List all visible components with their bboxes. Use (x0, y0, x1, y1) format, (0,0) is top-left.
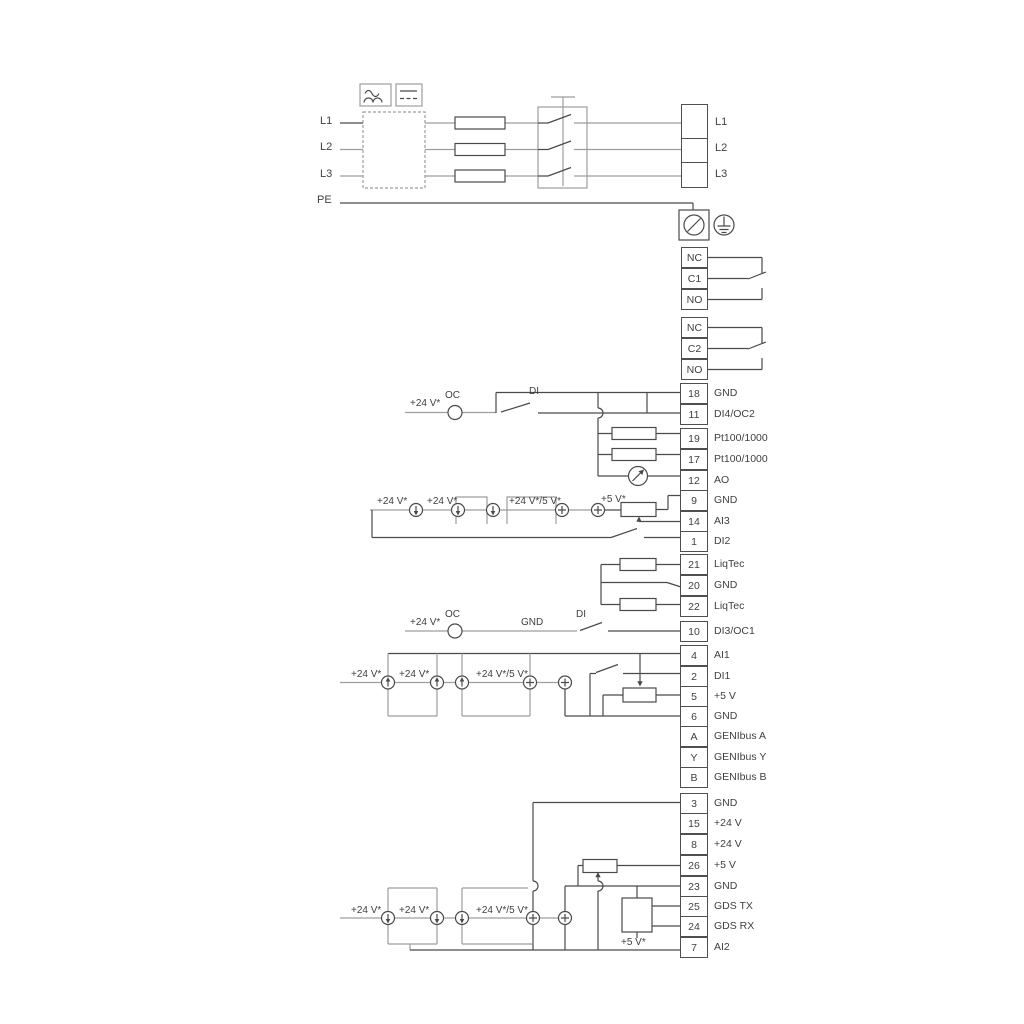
potentiometer-icon (583, 860, 617, 873)
dc-symbol-icon (396, 84, 422, 106)
power-out-label-l2: L2 (715, 142, 727, 154)
fuse-l3-icon (455, 170, 505, 182)
terminal-cell-17: 17 (680, 449, 708, 470)
gnd-label: GND (521, 617, 543, 628)
terminal-label-12: AO (714, 474, 729, 486)
power-in-label-l2: L2 (320, 141, 332, 153)
terminal-label-2: DI1 (714, 670, 730, 682)
terminal-cell-26: 26 (680, 855, 708, 876)
mains-out-terminal-l3 (681, 162, 708, 188)
gds-sensor-box (622, 898, 652, 932)
terminal-label-19: Pt100/1000 (714, 432, 768, 444)
current-source-icon (431, 912, 444, 925)
terminal-cell-10: 10 (680, 621, 708, 642)
relay2-terminal-c2: C2 (681, 338, 708, 359)
terminal-label-6: GND (714, 710, 737, 722)
wiring-diagram-svg (0, 0, 1024, 1024)
liqtec-circuit (601, 559, 681, 611)
terminal-cell-12: 12 (680, 470, 708, 491)
power-out-label-l3: L3 (715, 168, 727, 180)
relay1-contact (708, 258, 766, 300)
mains-out-terminal-l2 (681, 138, 708, 163)
liqtec-sensor-icon (620, 599, 656, 611)
terminal-label-a: GENIbus A (714, 730, 766, 742)
supply-label: +24 V* (410, 617, 440, 628)
terminal-cell-21: 21 (680, 554, 708, 575)
terminal-cell-11: 11 (680, 404, 708, 425)
current-source-icon (487, 504, 500, 517)
terminal-cell-9: 9 (680, 490, 708, 511)
mains-wiring (340, 123, 693, 210)
terminal-label-11: DI4/OC2 (714, 408, 755, 420)
voltage-source-icon (559, 676, 572, 689)
wiring-diagram-page: L1 L2 L3 PE L1 L2 L3 NC C1 NO NC C2 NO 1… (0, 0, 1024, 1024)
terminal-label-7: AI2 (714, 941, 730, 953)
terminal-cell-14: 14 (680, 511, 708, 532)
relay2-terminal-no: NO (681, 359, 708, 380)
terminal-cell-8: 8 (680, 834, 708, 855)
terminal-cell-5: 5 (680, 686, 708, 707)
terminal-cell-23: 23 (680, 876, 708, 897)
terminal-cell-25: 25 (680, 896, 708, 917)
terminal-label-b: GENIbus B (714, 771, 767, 783)
current-source-icon (431, 676, 444, 689)
open-collector-icon (448, 406, 462, 420)
main-switch (538, 97, 587, 188)
ac-symbol-icon (360, 84, 391, 106)
relay2-terminal-nc: NC (681, 317, 708, 338)
fuses (455, 117, 505, 182)
current-source-icon (410, 504, 423, 517)
terminal-label-8: +24 V (714, 838, 742, 850)
current-source-icon (382, 676, 395, 689)
power-in-label-l3: L3 (320, 168, 332, 180)
terminal-cell-1: 1 (680, 531, 708, 552)
voltage-source-icon (592, 504, 605, 517)
supply-label: +24 V* (399, 669, 429, 680)
supply-label: +5 V* (601, 494, 626, 505)
terminal-cell-2: 2 (680, 666, 708, 687)
relay1-terminal-nc: NC (681, 247, 708, 268)
ai2-gds-circuit (340, 803, 681, 951)
terminal-cell-19: 19 (680, 428, 708, 449)
terminal-label-26: +5 V (714, 859, 736, 871)
pt100-sensor-icon (612, 449, 656, 461)
supply-label: +24 V* (427, 496, 457, 507)
ai1-di1-circuit (340, 654, 681, 717)
supply-label: +24 V* (399, 905, 429, 916)
terminal-cell-3: 3 (680, 793, 708, 814)
supply-label: +24 V* (351, 669, 381, 680)
terminal-cell-a: A (680, 726, 708, 747)
relay2-contact (708, 328, 766, 370)
terminal-cell-22: 22 (680, 596, 708, 617)
current-source-icon (382, 912, 395, 925)
mains-out-terminal-l1 (681, 104, 708, 139)
terminal-label-9: GND (714, 494, 737, 506)
terminal-label-23: GND (714, 880, 737, 892)
supply-label: +24 V*/5 V* (509, 496, 561, 507)
voltage-source-icon (559, 912, 572, 925)
terminal-label-1: DI2 (714, 535, 730, 547)
pt100-sensor-icon (612, 428, 656, 440)
current-source-icon (456, 676, 469, 689)
terminal-label-14: AI3 (714, 515, 730, 527)
relay1-terminal-no: NO (681, 289, 708, 310)
terminal-label-21: LiqTec (714, 558, 744, 570)
terminal-label-5: +5 V (714, 690, 736, 702)
terminal-cell-15: 15 (680, 813, 708, 834)
voltage-source-icon (527, 912, 540, 925)
pe-terminals (679, 210, 734, 240)
terminal-label-y: GENIbus Y (714, 751, 766, 763)
oc-label: OC (445, 609, 460, 620)
terminal-cell-4: 4 (680, 645, 708, 666)
terminal-label-17: Pt100/1000 (714, 453, 768, 465)
terminal-label-25: GDS TX (714, 900, 753, 912)
terminal-label-20: GND (714, 579, 737, 591)
supply-label: +24 V* (377, 496, 407, 507)
supply-label: +24 V*/5 V* (476, 669, 528, 680)
terminal-label-24: GDS RX (714, 920, 754, 932)
di4-oc2-circuit (405, 393, 681, 486)
power-in-label-pe: PE (317, 194, 332, 206)
power-out-label-l1: L1 (715, 116, 727, 128)
terminal-cell-18: 18 (680, 383, 708, 404)
current-source-icon (456, 912, 469, 925)
supply-label: +24 V*/5 V* (476, 905, 528, 916)
di-label: DI (529, 386, 539, 397)
terminal-label-4: AI1 (714, 649, 730, 661)
di-label: DI (576, 609, 586, 620)
terminal-label-18: GND (714, 387, 737, 399)
terminal-cell-7: 7 (680, 937, 708, 958)
terminal-cell-6: 6 (680, 706, 708, 727)
oc-label: OC (445, 390, 460, 401)
terminal-cell-b: B (680, 767, 708, 788)
supply-label: +5 V* (621, 937, 646, 948)
potentiometer-icon (621, 503, 656, 517)
converter-box (360, 84, 425, 188)
power-in-label-l1: L1 (320, 115, 332, 127)
terminal-cell-24: 24 (680, 916, 708, 937)
terminal-cell-y: Y (680, 747, 708, 768)
open-collector-icon (448, 624, 462, 638)
terminal-cell-20: 20 (680, 575, 708, 596)
supply-label: +24 V* (351, 905, 381, 916)
terminal-label-3: GND (714, 797, 737, 809)
terminal-label-10: DI3/OC1 (714, 625, 755, 637)
fuse-l1-icon (455, 117, 505, 129)
terminal-label-22: LiqTec (714, 600, 744, 612)
supply-label: +24 V* (410, 398, 440, 409)
relay1-terminal-c1: C1 (681, 268, 708, 289)
fuse-l2-icon (455, 144, 505, 156)
potentiometer-icon (623, 688, 656, 702)
liqtec-sensor-icon (620, 559, 656, 571)
terminal-label-15: +24 V (714, 817, 742, 829)
